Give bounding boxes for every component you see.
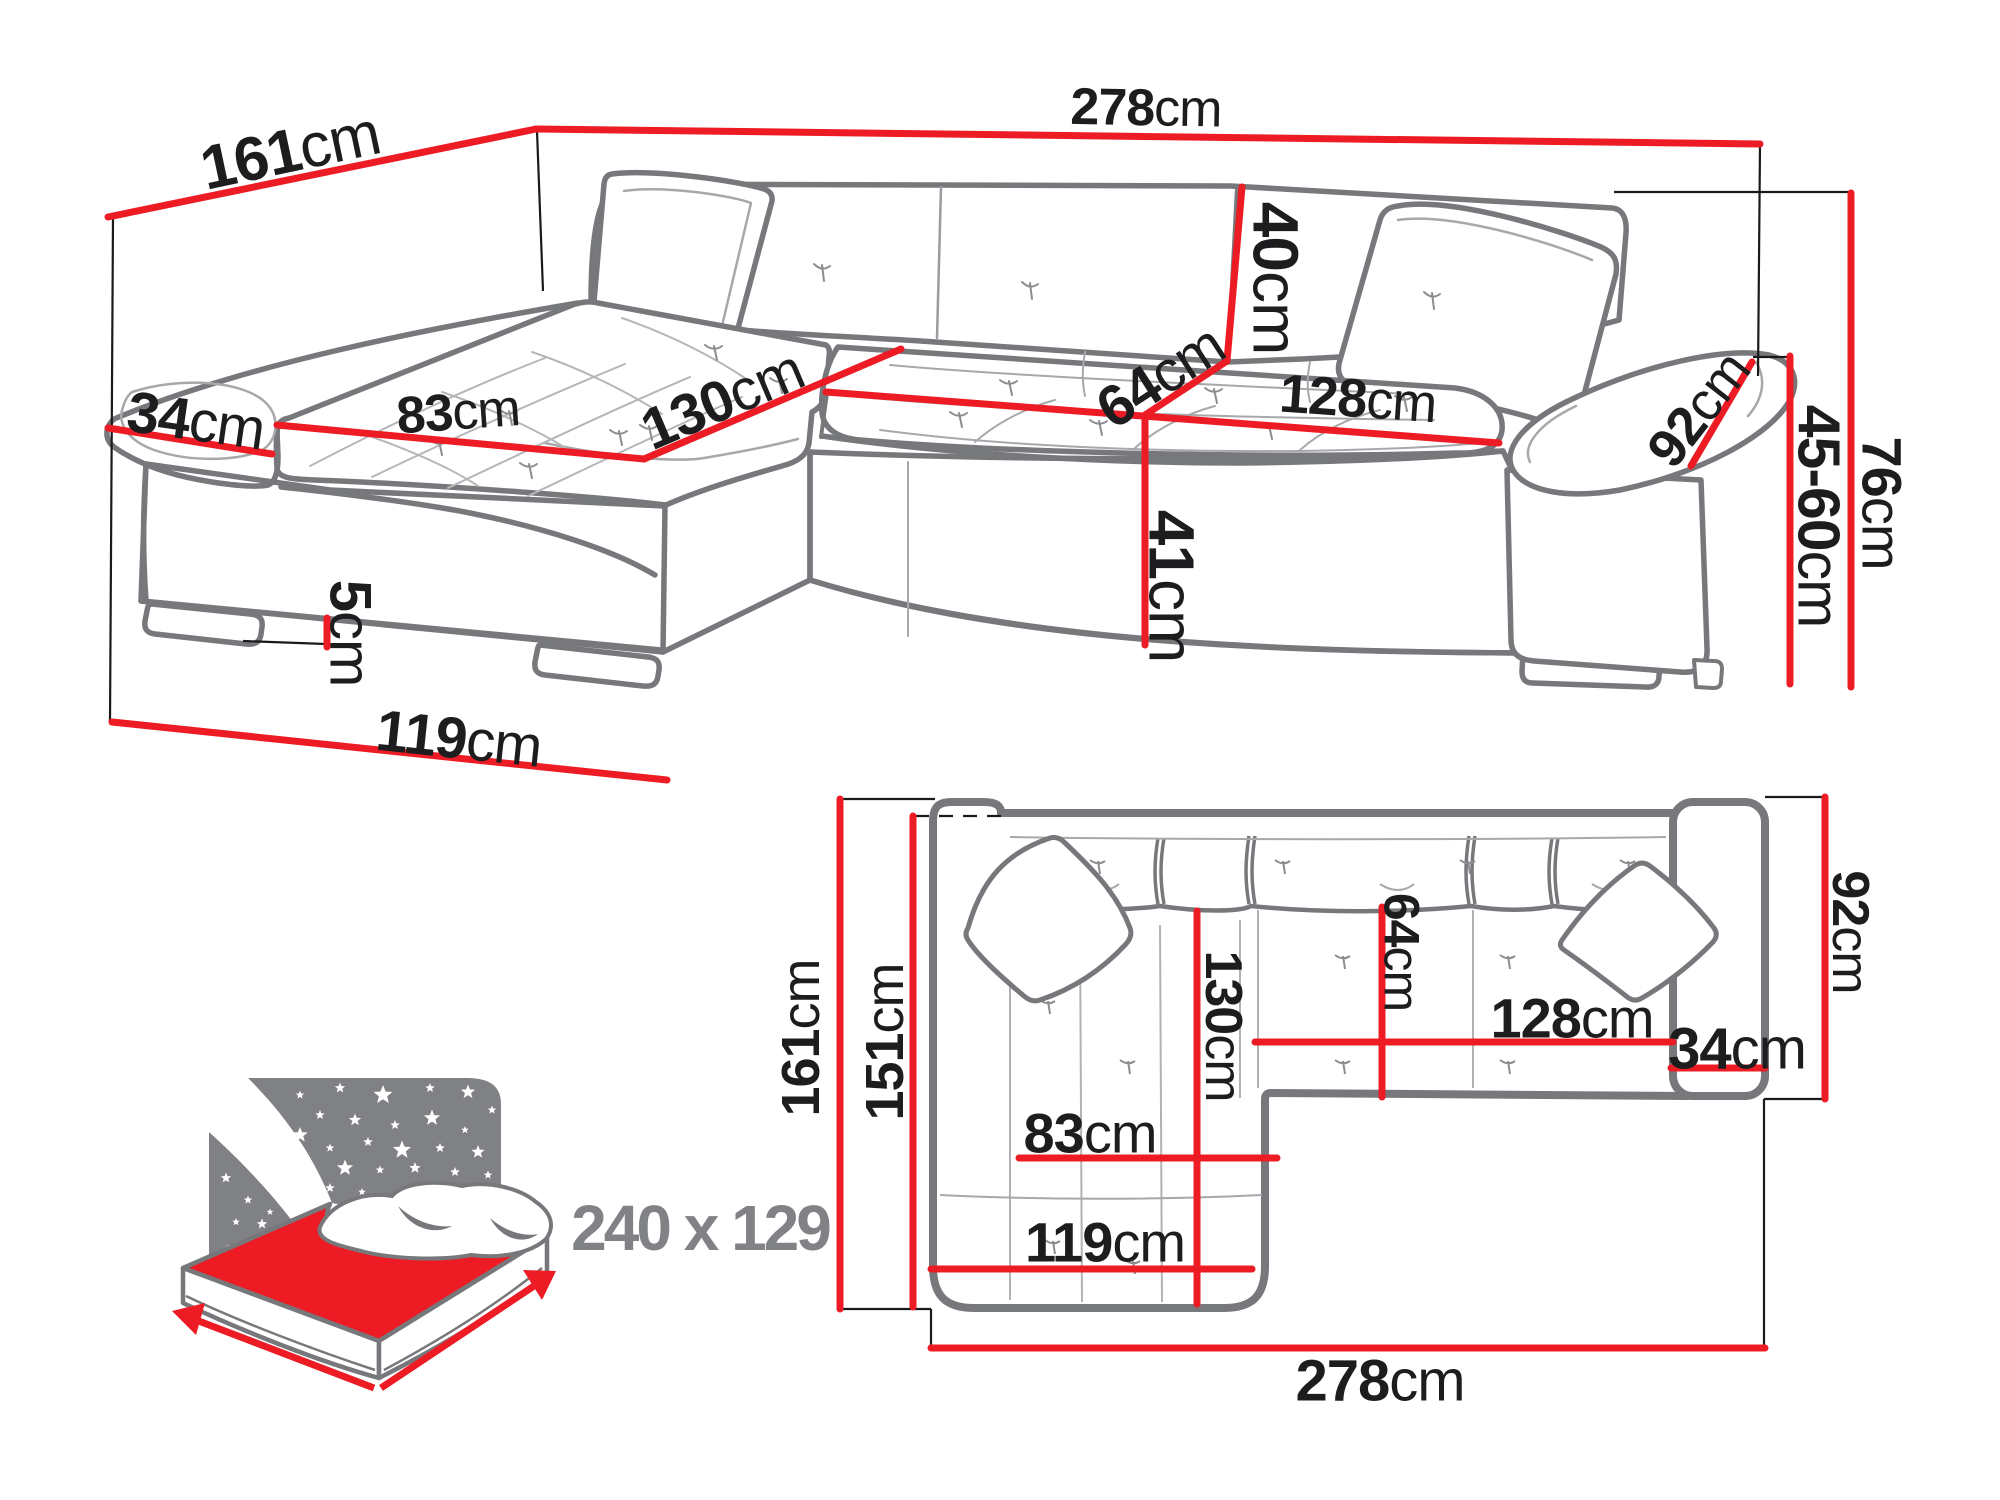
- svg-text:161cm: 161cm: [771, 959, 831, 1116]
- svg-text:151cm: 151cm: [855, 963, 915, 1120]
- svg-text:119cm: 119cm: [1025, 1211, 1185, 1274]
- svg-text:128cm: 128cm: [1277, 363, 1438, 434]
- svg-text:83cm: 83cm: [395, 379, 522, 445]
- svg-text:45-60cm: 45-60cm: [1785, 405, 1851, 628]
- svg-text:41cm: 41cm: [1136, 510, 1208, 663]
- svg-text:92cm: 92cm: [1821, 870, 1879, 993]
- svg-text:5cm: 5cm: [318, 580, 383, 687]
- svg-text:278cm: 278cm: [1295, 1348, 1464, 1413]
- svg-text:128cm: 128cm: [1490, 987, 1653, 1050]
- svg-text:240 x 129: 240 x 129: [571, 1192, 830, 1264]
- svg-text:76cm: 76cm: [1850, 437, 1913, 570]
- svg-text:34cm: 34cm: [1668, 1016, 1806, 1081]
- svg-text:278cm: 278cm: [1070, 78, 1222, 139]
- svg-text:64cm: 64cm: [1374, 893, 1430, 1011]
- svg-text:83cm: 83cm: [1024, 1102, 1157, 1165]
- svg-text:130cm: 130cm: [1194, 950, 1252, 1101]
- svg-text:40cm: 40cm: [1240, 202, 1312, 355]
